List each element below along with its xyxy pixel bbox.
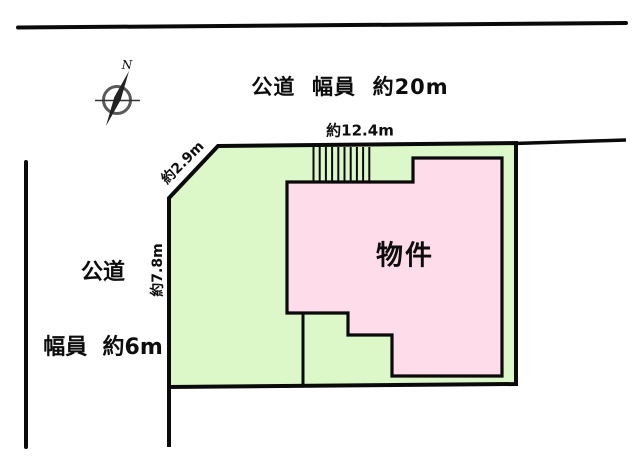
compass-needle [106,71,129,126]
left-frontage-dimension: 約7.8m [150,243,166,296]
west-road-label: 公道 幅員 約6m [43,210,163,410]
building-label: 物件 [376,240,434,271]
north-road-lower-edge-extension-line [514,140,626,144]
top-frontage-dimension: 約12.4m [326,122,394,139]
west-road-label-line1: 公道 [43,260,163,285]
north-road-label: 公道 幅員 約20m [251,75,448,99]
west-road-label-line2: 幅員 約6m [43,335,163,360]
compass-icon [95,71,140,126]
site-plan: 公道 幅員 約20m 公道 幅員 約6m 約12.4m 約2.9m 約7.8m … [0,0,640,465]
compass-north-label: N [122,59,133,73]
north-road-upper-edge-line [18,23,626,28]
